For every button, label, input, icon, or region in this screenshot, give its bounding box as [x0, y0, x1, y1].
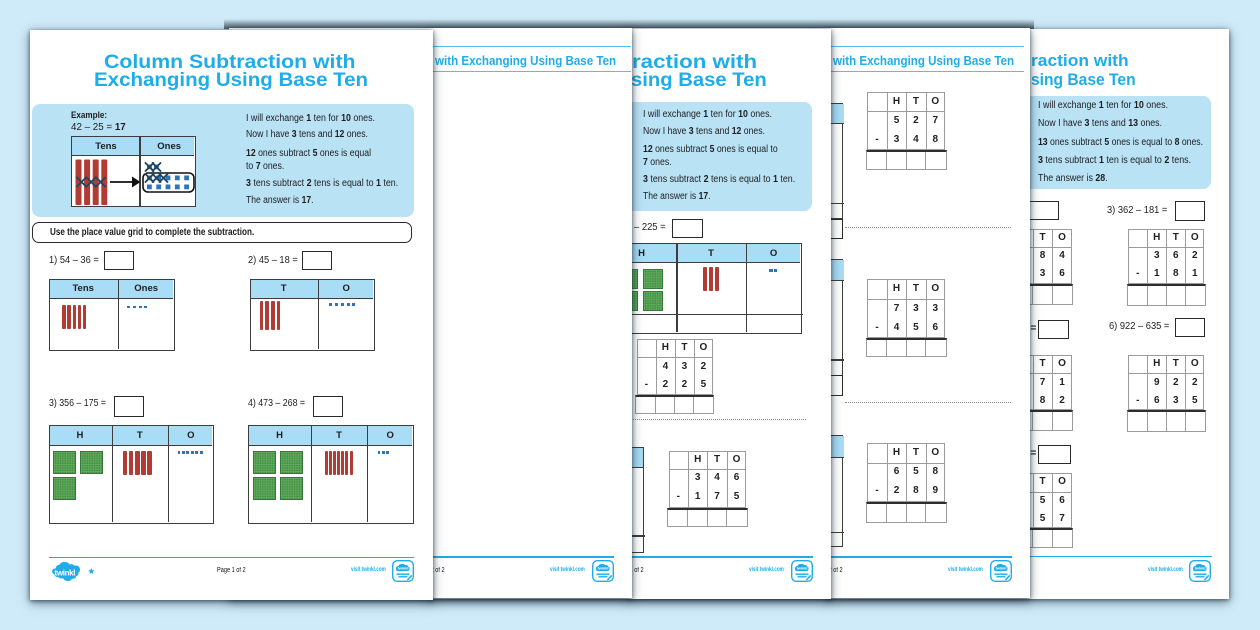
svg-text:twinkl: twinkl [796, 567, 807, 571]
svg-text:twinkl: twinkl [1194, 567, 1205, 571]
svg-text:twinkl: twinkl [54, 568, 75, 577]
svg-text:twinkl: twinkl [995, 567, 1006, 571]
svg-text:twinkl: twinkl [597, 567, 608, 571]
svg-text:twinkl: twinkl [398, 567, 409, 571]
